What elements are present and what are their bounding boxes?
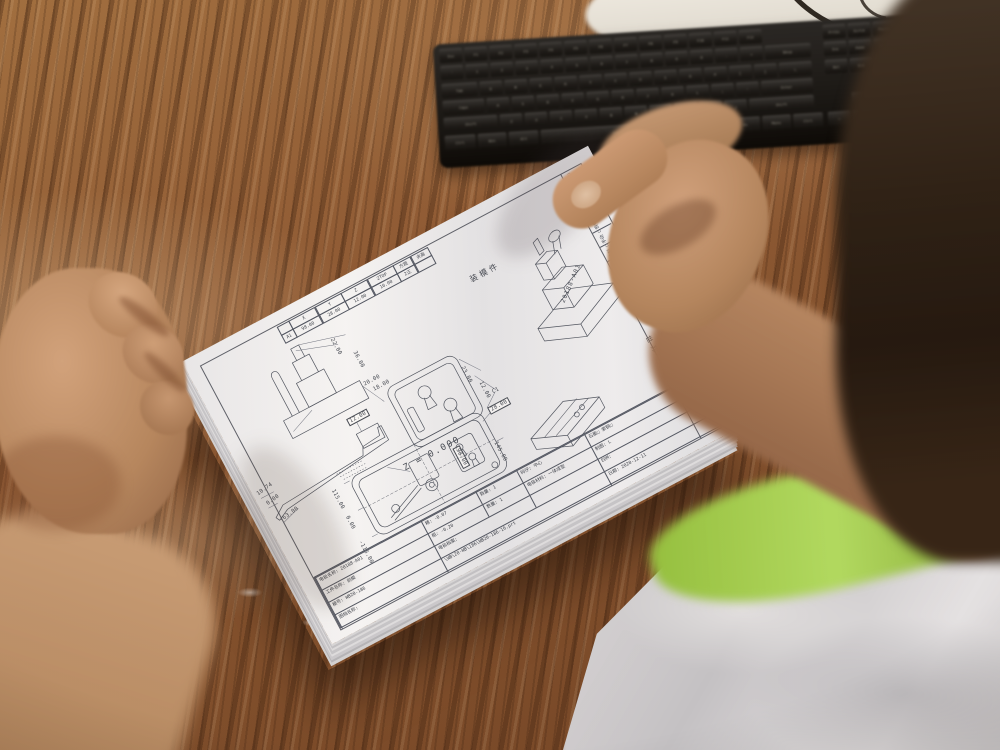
photo-scene: EscF1F2F3F4F5F6F7F8F9F10F11F12`123456789…: [0, 0, 1000, 750]
person-head: [836, 0, 1000, 562]
